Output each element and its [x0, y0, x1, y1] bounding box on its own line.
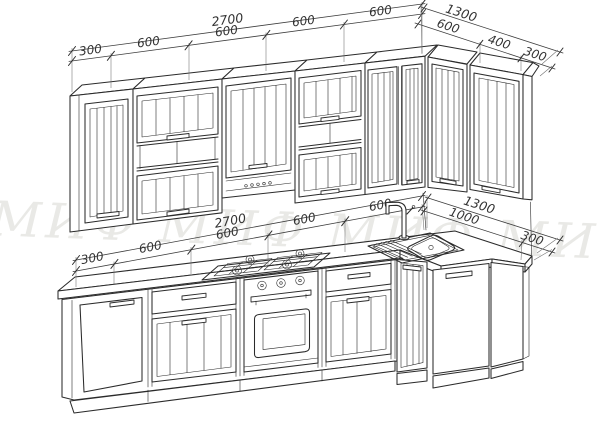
dim-base-left-seg: 300 [80, 249, 105, 267]
wall-cabinet-end-300 [70, 89, 133, 232]
built-in-oven [244, 271, 318, 372]
base-end-side [491, 263, 523, 368]
base-cabinet-corner-sink [397, 260, 529, 375]
wall-cabinet-end-300-right [470, 65, 532, 200]
kitchen-technical-drawing: МИФ МИФ МИФ МИФ [0, 0, 600, 424]
wall-cabinet-600-shelf [295, 63, 365, 203]
dim-wall-left-seg: 600 [136, 34, 161, 51]
base-cabinet-end-300 [80, 298, 142, 393]
dim-wall-left-seg: 600 [291, 13, 316, 30]
wall-cabinet-400 [428, 57, 467, 192]
wall-cabinet-600-hood [222, 71, 295, 198]
base-cabinet-600-drawer [326, 263, 391, 362]
wall-cabinet-corner-600 [365, 56, 425, 194]
base-cabinets [58, 231, 532, 413]
dim-wall-left-seg: 600 [368, 3, 393, 20]
dim-wall-left-seg: 300 [78, 42, 103, 59]
blueprint-page: МИФ МИФ МИФ МИФ [0, 0, 600, 424]
base-cabinet-600-drawer [152, 282, 236, 382]
wall-cabinet-600-shelf [133, 79, 222, 224]
corner-sink-door [433, 264, 489, 375]
dim-wall-left-seg: 600 [214, 23, 239, 40]
